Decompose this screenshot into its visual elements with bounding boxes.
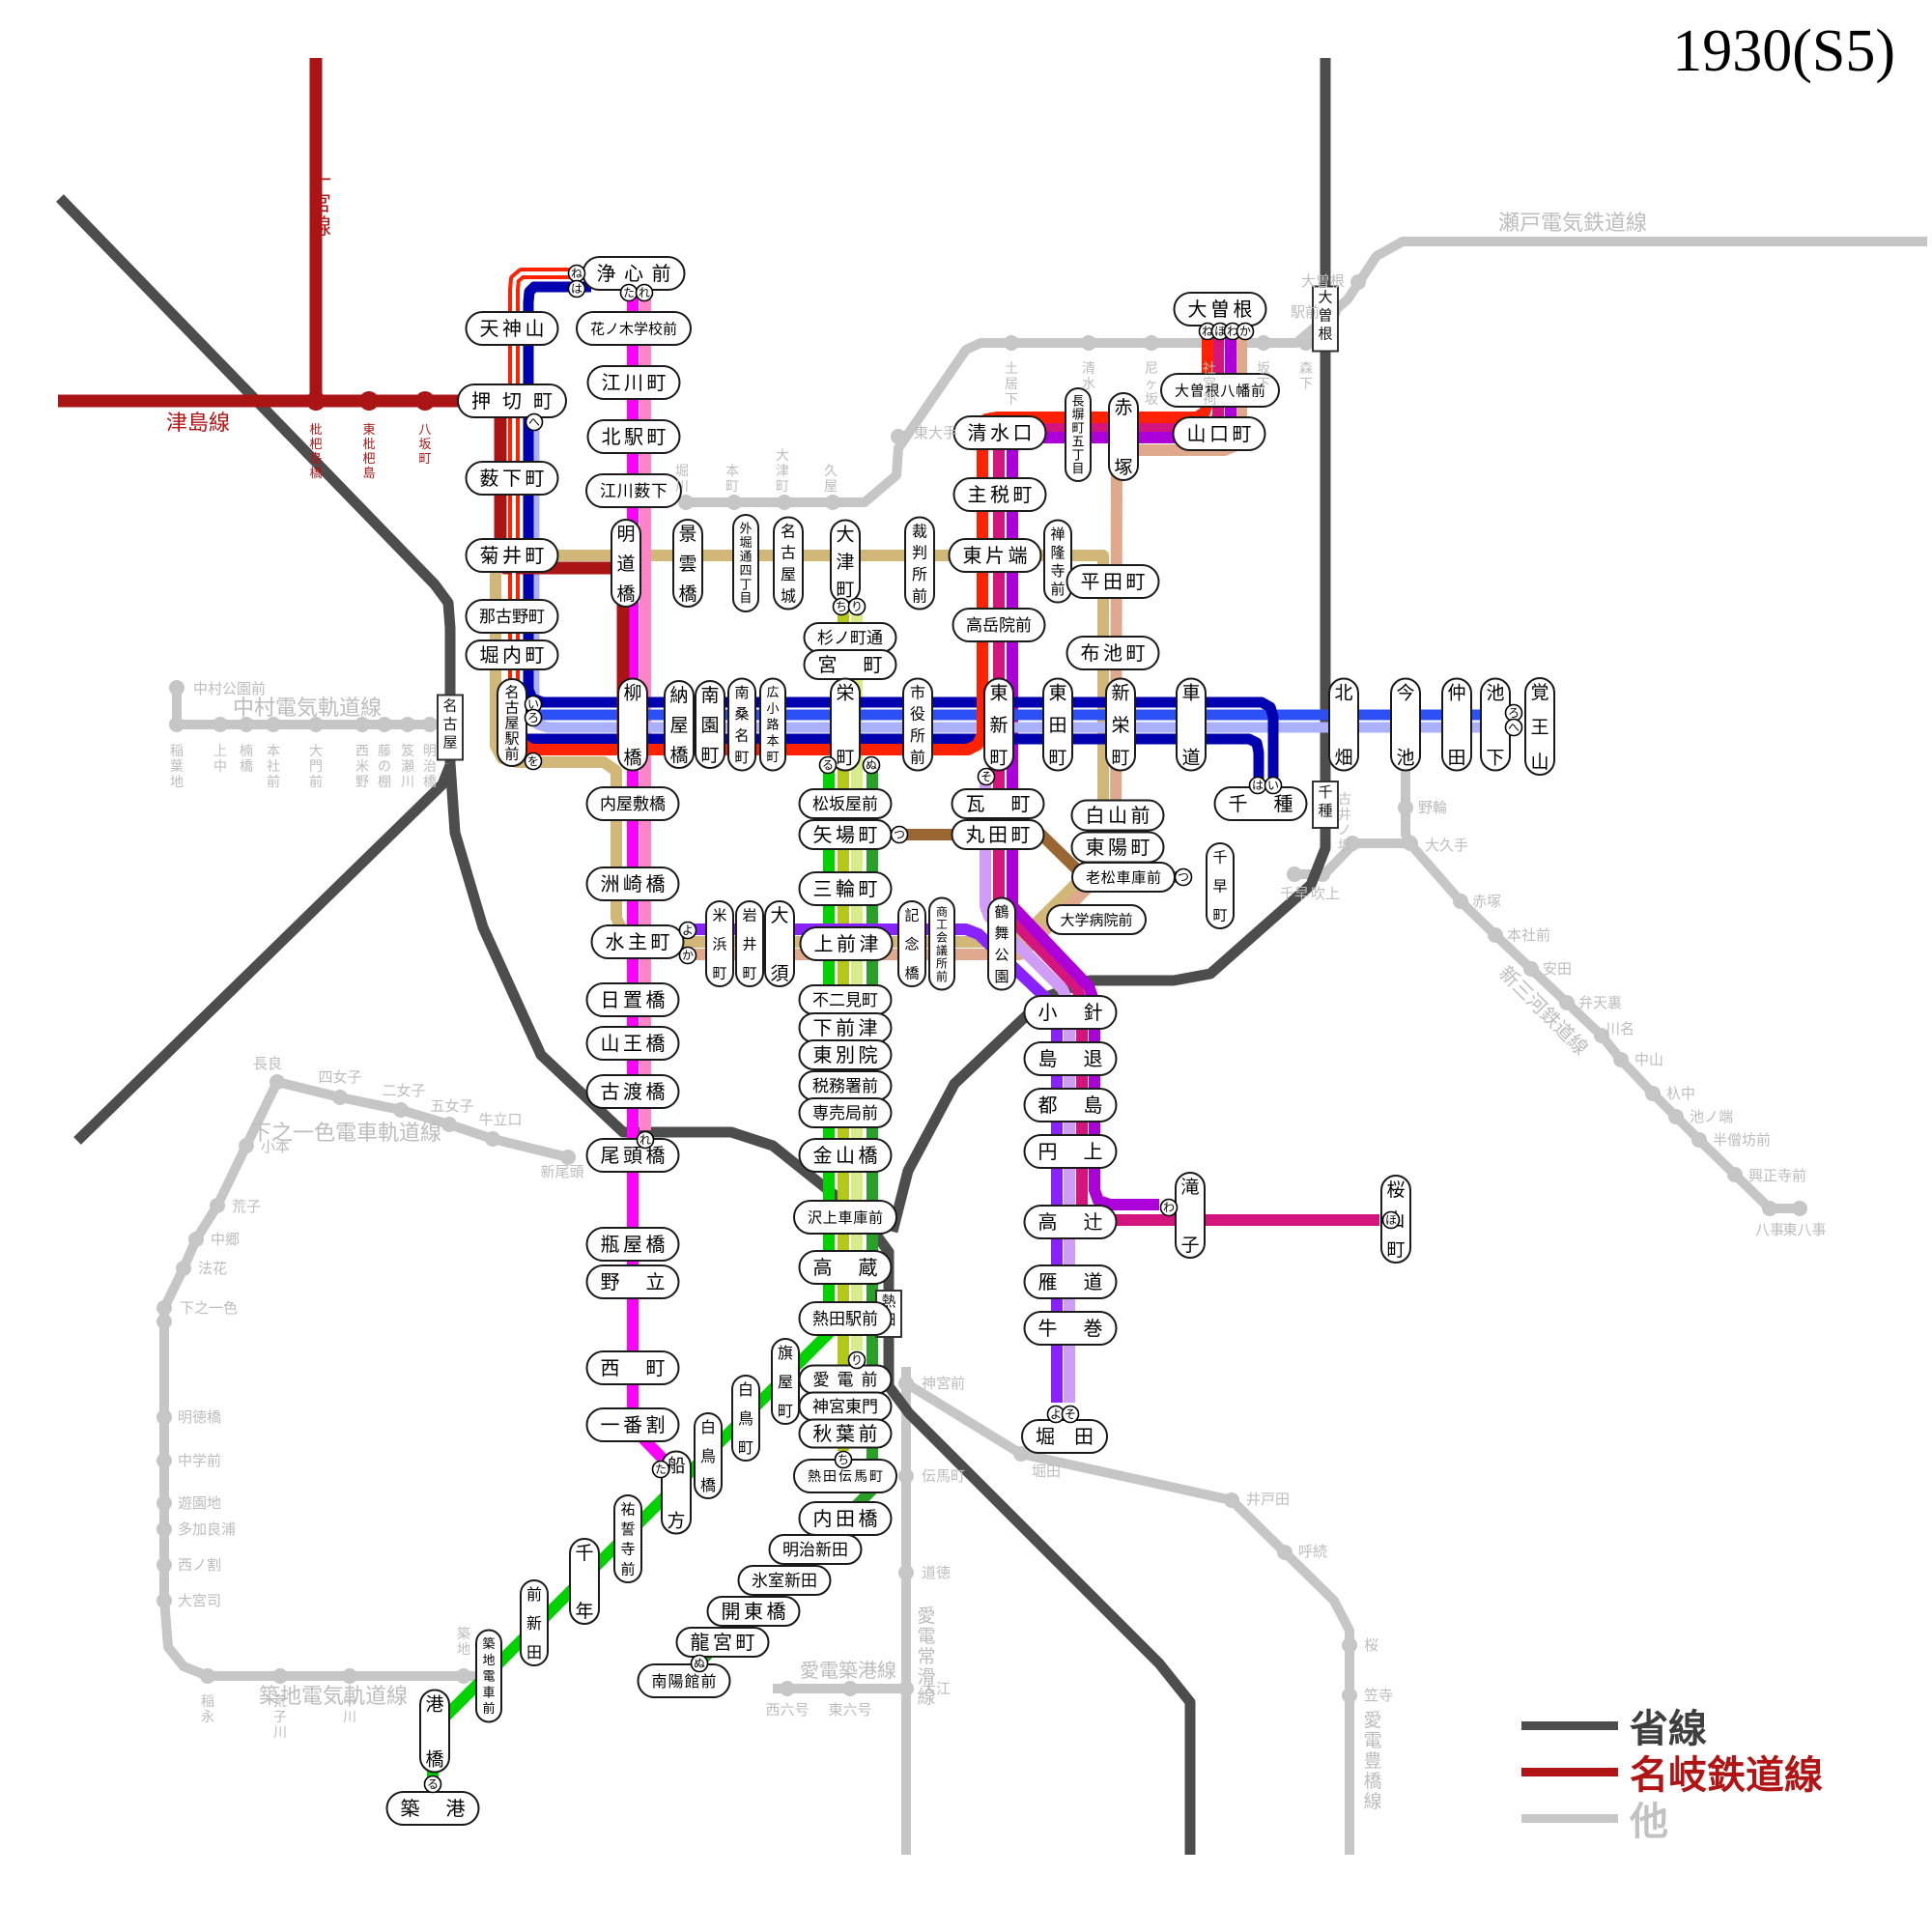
station-dot: [169, 680, 185, 696]
station-name: 内田橋: [813, 1508, 878, 1530]
station-name: 江川薮下: [600, 482, 668, 500]
station-name: 薮下町: [480, 468, 545, 490]
station-dot: [1645, 1086, 1661, 1101]
map-label: 楠橋: [240, 743, 253, 774]
station-name: 大津町: [836, 524, 854, 600]
map-label: 法花: [198, 1261, 227, 1277]
map-label: 吹上: [1311, 886, 1340, 902]
map-label: 大久手: [1425, 838, 1468, 854]
station-dot: [1144, 335, 1159, 351]
station-name: 堀内町: [480, 644, 545, 667]
station-name: 白山前: [1086, 805, 1151, 827]
route-line: [60, 198, 450, 763]
station-dot: [1613, 1052, 1629, 1067]
map-label: 本社前: [1507, 927, 1550, 944]
station-name: 杉ノ町通: [817, 629, 883, 647]
route-badge-kana: つ: [1178, 870, 1189, 884]
map-label: 小本: [261, 1139, 290, 1155]
map-canvas: 名古屋熱田千種大曽根浄心前花ノ木学校前江川町北駅町江川薮下天神山押切町薮下町菊井…: [0, 0, 1932, 1932]
map-label: 杁中: [1666, 1086, 1695, 1102]
station-dot: [1277, 1545, 1293, 1560]
station-name: 熱田駅前: [812, 1310, 878, 1328]
map-label: 中村公園前: [193, 681, 266, 697]
map-label: 五女子: [430, 1097, 473, 1115]
station-dot: [842, 1681, 858, 1696]
station-name: 広小路本町: [766, 685, 779, 764]
station-name: 高岳院前: [966, 616, 1032, 635]
station-name: 氷室新田: [752, 1572, 817, 1590]
map-label: 下之一色: [180, 1300, 238, 1317]
map-label: 長良: [253, 1056, 282, 1072]
jr-station-label: 大曽根: [1318, 290, 1332, 343]
route-badge-kana: る: [822, 758, 834, 772]
map-label: 津島線: [166, 411, 230, 435]
map-label: 半僧坊前: [1713, 1132, 1771, 1149]
map-label: 土居下: [1005, 360, 1018, 407]
station-dot: [1668, 1109, 1684, 1124]
map-label: 駅前: [1291, 304, 1320, 321]
map-label: 荒子川: [273, 1693, 287, 1740]
station-name: 押切町: [471, 390, 553, 412]
station-dot: [156, 1557, 172, 1573]
station-name: 旗屋町: [778, 1345, 793, 1420]
station-dot: [1453, 894, 1468, 909]
map-label: 千早: [1280, 886, 1309, 902]
station-name: 松坂屋前: [812, 795, 878, 813]
station-dot: [332, 1090, 348, 1105]
station-dot: [400, 717, 415, 732]
route-badge-kana: ち: [836, 600, 847, 613]
route-badge-kana: そ: [1065, 1407, 1076, 1421]
station-name: 那古野町: [479, 608, 545, 626]
station-name: 清水口: [968, 422, 1033, 444]
station-dot: [306, 391, 326, 411]
station-name: 金山橋: [813, 1145, 878, 1167]
map-label: 大曽根: [1301, 273, 1345, 290]
map-label: 大宮司: [178, 1593, 221, 1609]
station-name: 一番割: [601, 1414, 666, 1436]
route-line: [906, 1383, 1350, 1855]
map-year-title: 1930(S5): [1672, 17, 1895, 86]
route-badge-kana: ね: [571, 267, 582, 280]
station-name: 専売局前: [812, 1104, 878, 1122]
station-dot: [1350, 274, 1366, 290]
station-name: 東別院: [813, 1044, 878, 1066]
route-badge-kana: を: [527, 754, 539, 768]
route-badge-kana: わ: [1163, 1201, 1175, 1214]
route-badge-kana: ち: [838, 1453, 849, 1466]
map-label: 伝馬町: [922, 1468, 965, 1485]
station-name: 布池町: [1081, 642, 1146, 665]
route-line: [164, 1082, 568, 1676]
station-name: 白鳥橋: [700, 1419, 716, 1494]
legend-swatch-meigi: [1521, 1768, 1618, 1776]
station-dot: [1523, 961, 1539, 977]
route-badge-kana: は: [1252, 779, 1264, 792]
station-name: 愛電前: [813, 1371, 878, 1389]
route-badge-kana: い: [1267, 779, 1279, 792]
station-name: 浄心前: [597, 263, 671, 285]
legend-swatch-other: [1521, 1814, 1618, 1823]
station-name: 矢場町: [813, 824, 878, 846]
route-badge-kana: た: [623, 286, 635, 299]
legend-label-other: 他: [1630, 1790, 1668, 1846]
station-name: 納屋橋: [669, 685, 688, 766]
station-name: 尾頭橋: [601, 1145, 666, 1167]
station-name: 東田町: [1048, 682, 1066, 768]
station-pills: 浄心前花ノ木学校前江川町北駅町江川薮下天神山押切町薮下町菊井町那古野町堀内町名古…: [387, 257, 1555, 1825]
station-dot: [422, 717, 438, 732]
station-name: 天神山: [480, 318, 545, 340]
route-badge-kana: ぬ: [694, 1657, 705, 1670]
station-name: 龍宮町: [691, 1632, 755, 1654]
route-badge-kana: た: [655, 1463, 667, 1476]
station-dot: [272, 1668, 288, 1684]
station-name: 千早町: [1212, 849, 1227, 923]
map-label: 上中: [213, 743, 227, 774]
map-label: 道徳: [922, 1565, 951, 1581]
station-dot: [176, 1261, 191, 1276]
station-name: 熱田伝馬町: [808, 1468, 883, 1484]
station-name: 明道橋: [616, 525, 635, 605]
map-label: 西ノ割: [178, 1557, 221, 1574]
station-name: 大学病院前: [1061, 911, 1133, 928]
map-label: 清水: [1082, 360, 1095, 391]
map-label: 稲永: [201, 1693, 214, 1724]
station-dot: [891, 429, 906, 444]
station-dot: [342, 1668, 357, 1684]
map-label: 愛電築港線: [800, 1660, 896, 1682]
station-dot: [359, 391, 379, 411]
station-dot: [1398, 800, 1413, 815]
map-label: 瀬戸電気鉄道線: [1498, 211, 1647, 235]
station-dot: [210, 1198, 225, 1213]
station-name: 沢上車庫前: [808, 1209, 883, 1226]
map-label: 尼ヶ坂: [1145, 360, 1158, 407]
station-name: 景雲橋: [678, 525, 696, 605]
station-dot: [777, 495, 792, 510]
station-name: 江川町: [602, 372, 667, 394]
route-badge-kana: そ: [980, 770, 992, 783]
map-label: 中学前: [178, 1453, 221, 1469]
station-dot: [1488, 927, 1503, 943]
station-dot: [825, 495, 840, 510]
station-name: 不二見町: [812, 991, 878, 1009]
station-name: 上前津: [814, 933, 879, 955]
station-dot: [560, 1150, 576, 1165]
map-label: 一宮線: [310, 168, 331, 239]
map-label: 愛電豊橋線: [1363, 1710, 1381, 1812]
route-badge-kana: り: [851, 1353, 863, 1367]
station-name: 開東橋: [722, 1601, 786, 1623]
station-name: 老松車庫前: [1086, 869, 1161, 886]
map-label: 大門前: [309, 743, 323, 789]
map-label: 西六号: [765, 1702, 809, 1719]
legend: 省線 名岐鉄道線 他: [1521, 1702, 1823, 1841]
station-name: 米浜町: [712, 907, 726, 981]
route-badge-kana: ぬ: [866, 758, 877, 772]
map-label: 中郷: [211, 1232, 240, 1248]
map-label: 笠寺: [1364, 1688, 1393, 1704]
legend-row-shosen: 省線: [1521, 1702, 1823, 1748]
station-name: 新栄町: [1111, 682, 1129, 768]
station-name: 神宮東門: [812, 1398, 878, 1416]
station-name: 東新町: [989, 682, 1008, 768]
route-badge-kana: つ: [894, 828, 905, 841]
map-label: 赤塚: [1472, 894, 1501, 910]
station-name: 覚王山: [1530, 682, 1548, 773]
station-dot: [485, 1131, 500, 1147]
station-name: 主税町: [968, 484, 1033, 506]
station-name: 水主町: [606, 931, 670, 953]
station-name: 南園町: [700, 685, 719, 766]
route-badge-kana: ほ: [1385, 1213, 1397, 1227]
station-name: 東片端: [963, 545, 1028, 567]
station-name: 北駅町: [602, 426, 667, 448]
map-label: 牛立口: [478, 1112, 522, 1128]
map-label: 社宮祠: [1203, 360, 1216, 407]
station-name: 三輪町: [813, 878, 878, 900]
station-dot: [156, 1300, 172, 1316]
station-dot: [213, 717, 228, 732]
station-name: 下前津: [813, 1017, 878, 1039]
station-dot: [156, 1409, 172, 1425]
station-dot: [393, 1102, 409, 1118]
station-dot: [1727, 1167, 1743, 1182]
station-dot: [1287, 867, 1302, 882]
station-name: 丸田町: [966, 824, 1031, 846]
station-dot: [156, 1521, 172, 1537]
map-label: 神宮前: [922, 1376, 965, 1392]
station-dot: [156, 1495, 172, 1511]
station-dot: [1342, 1688, 1357, 1703]
map-label: 中山: [1634, 1052, 1663, 1068]
map-label: 川名: [1605, 1021, 1634, 1037]
route-badge-kana: よ: [1050, 1407, 1062, 1421]
station-name: 瓶屋橋: [601, 1234, 666, 1256]
station-dot: [270, 1074, 285, 1090]
map-label: 久屋: [824, 463, 838, 494]
jr-station-label: 名古屋: [442, 698, 457, 752]
station-dot: [1081, 335, 1096, 351]
map-label: 二女子: [382, 1082, 425, 1099]
map-label: 呼続: [1298, 1544, 1327, 1560]
station-name: 大曽根: [1188, 298, 1253, 321]
route-badge-kana: り: [851, 600, 863, 613]
station-name: 菊井町: [480, 545, 545, 567]
map-label: 東大手: [914, 425, 957, 441]
map-label: 井戸田: [1246, 1492, 1290, 1508]
station-dot: [1559, 995, 1575, 1010]
station-name: 岩井町: [742, 907, 756, 981]
map-label: 池ノ端: [1690, 1109, 1733, 1125]
map-label: 坂下: [1257, 360, 1270, 391]
map-label: 築地: [457, 1626, 470, 1657]
map-label: 本社前: [267, 743, 280, 789]
station-dot: [156, 1593, 172, 1608]
map-label: 多加良浦: [178, 1521, 236, 1538]
route-badge-kana: か: [682, 949, 694, 962]
map-label: 弁天裏: [1578, 994, 1622, 1011]
station-name: 古渡橋: [601, 1081, 666, 1103]
station-name: 白鳥町: [738, 1381, 753, 1457]
station-dot: [1298, 335, 1314, 351]
legend-row-other: 他: [1521, 1795, 1823, 1841]
station-dot: [156, 1314, 172, 1329]
map-label: 荒子: [232, 1199, 261, 1215]
station-name: 記念橋: [904, 907, 919, 981]
route-badge-kana: ろ: [1508, 706, 1520, 720]
route-badge-kana: ろ: [527, 711, 539, 724]
station-name: 山王橋: [601, 1033, 666, 1055]
map-label: 稲葉地: [170, 743, 184, 789]
route-badge-kana: へ: [528, 415, 540, 429]
map-label: 明治橋: [423, 743, 437, 789]
map-label: 四女子: [318, 1068, 361, 1086]
station-dot: [156, 1453, 172, 1468]
map-label: 藤の棚: [378, 743, 391, 789]
station-name: 築地電車前: [482, 1636, 495, 1716]
station-name: 内屋敷橋: [600, 795, 666, 813]
map-label: 本町: [725, 463, 739, 494]
map-label: 東六号: [828, 1702, 871, 1719]
route-badge-kana: よ: [682, 923, 694, 937]
route-badge-kana: れ: [639, 286, 650, 299]
map-label: 堀田: [1032, 1463, 1061, 1480]
route-badge-kana: は: [571, 282, 582, 296]
map-label: 笈瀬川: [401, 743, 414, 789]
station-name: 洲崎橋: [601, 873, 666, 895]
station-name: 秋葉前: [813, 1423, 878, 1445]
map-label: 大津町: [776, 447, 789, 494]
station-dot: [1691, 1132, 1707, 1148]
map-label: 古井ノ坂: [1338, 791, 1351, 853]
station-name: 前新田: [526, 1586, 542, 1662]
map-label: 愛電常滑線: [917, 1605, 935, 1708]
station-name: 商工会議所前: [936, 904, 948, 983]
station-dot: [169, 717, 185, 732]
map-label: 八坂町: [418, 422, 431, 466]
legend-swatch-shosen: [1521, 1721, 1618, 1730]
station-dot: [188, 1232, 204, 1247]
map-label: 中川: [343, 1693, 356, 1724]
map-label: 新尾頭: [540, 1164, 583, 1180]
station-name: 平田町: [1081, 572, 1146, 593]
station-name: 大曽根八幡前: [1175, 383, 1265, 399]
map-label: 安田: [1543, 961, 1572, 978]
map-label: 西米野: [355, 743, 369, 789]
station-dot: [726, 495, 742, 510]
map-label: 八事: [1755, 1222, 1784, 1238]
station-name: 長塀町五丁目: [1071, 394, 1084, 476]
route-badge-kana: か: [1239, 325, 1251, 338]
station-dot: [780, 1681, 795, 1696]
station-name: 山口町: [1187, 423, 1252, 445]
station-name: 日置橋: [601, 989, 666, 1011]
station-dot: [200, 1668, 215, 1684]
map-label: 遊園地: [178, 1495, 221, 1512]
transit-map-1930: 名古屋熱田千種大曽根浄心前花ノ木学校前江川町北駅町江川薮下天神山押切町薮下町菊井…: [0, 0, 1932, 1932]
station-dot: [1762, 1201, 1777, 1216]
map-label: 興正寺前: [1748, 1168, 1806, 1184]
station-dot: [898, 1565, 914, 1580]
station-dot: [1792, 1201, 1807, 1216]
map-label: 堀川: [675, 463, 689, 494]
map-label: 野輪: [1418, 800, 1447, 816]
station-dot: [1342, 1637, 1357, 1653]
map-label: 桜: [1364, 1637, 1378, 1654]
map-label: 中村電気軌道線: [233, 696, 382, 720]
station-dot: [898, 1468, 914, 1484]
legend-row-meigi: 名岐鉄道線: [1521, 1748, 1823, 1795]
station-dot: [456, 1668, 471, 1684]
route-badge-kana: へ: [1508, 721, 1520, 734]
map-label: 枇杷島橋: [309, 422, 322, 480]
map-label: 東枇杷島: [362, 422, 375, 480]
station-name: 名古屋駅前: [504, 684, 519, 762]
station-name: 東陽町: [1086, 837, 1151, 859]
station-name: 税務署前: [812, 1077, 878, 1095]
station-dot: [441, 1117, 457, 1132]
station-dot: [415, 391, 435, 411]
station-dot: [1256, 335, 1271, 351]
route-badge-kana: れ: [639, 1133, 651, 1147]
station-name: 花ノ木学校前: [590, 321, 677, 337]
station-dot: [1224, 1492, 1239, 1508]
map-label: 森下: [1299, 360, 1313, 391]
station-name: 明治新田: [782, 1541, 848, 1559]
station-dot: [1004, 335, 1019, 351]
station-name: 南陽館前: [652, 1673, 717, 1690]
station-name: 外堀通四丁目: [739, 522, 752, 606]
map-label: 明徳橋: [178, 1409, 221, 1426]
map-label: 東八事: [1782, 1222, 1826, 1238]
route-badge-kana: る: [427, 1777, 439, 1791]
